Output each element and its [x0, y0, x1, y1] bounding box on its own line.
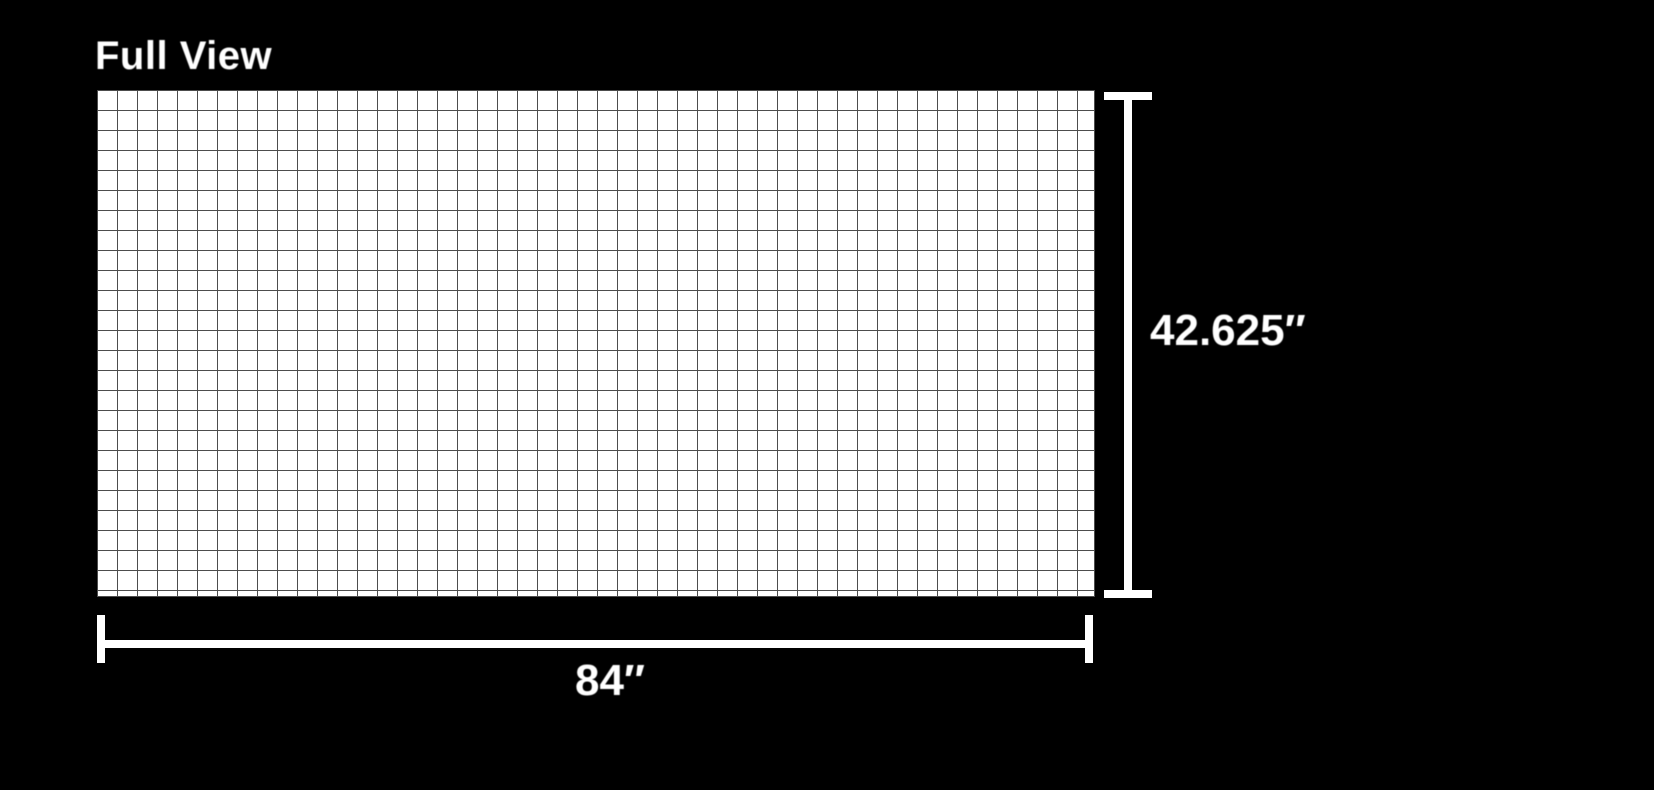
height-dimension-line	[1124, 92, 1132, 598]
height-dimension-bracket	[1104, 92, 1152, 598]
height-dimension-bottom-cap	[1104, 590, 1152, 598]
height-dimension-label: 42.625″	[1150, 306, 1306, 356]
page-title: Full View	[95, 34, 272, 79]
width-dimension-right-cap	[1085, 615, 1093, 663]
width-dimension-left-cap	[97, 615, 105, 663]
width-dimension-line	[97, 640, 1093, 648]
width-dimension-label: 84″	[540, 656, 680, 706]
grid-panel	[97, 90, 1095, 597]
page: Full View 42.625″ 84″	[0, 0, 1654, 790]
